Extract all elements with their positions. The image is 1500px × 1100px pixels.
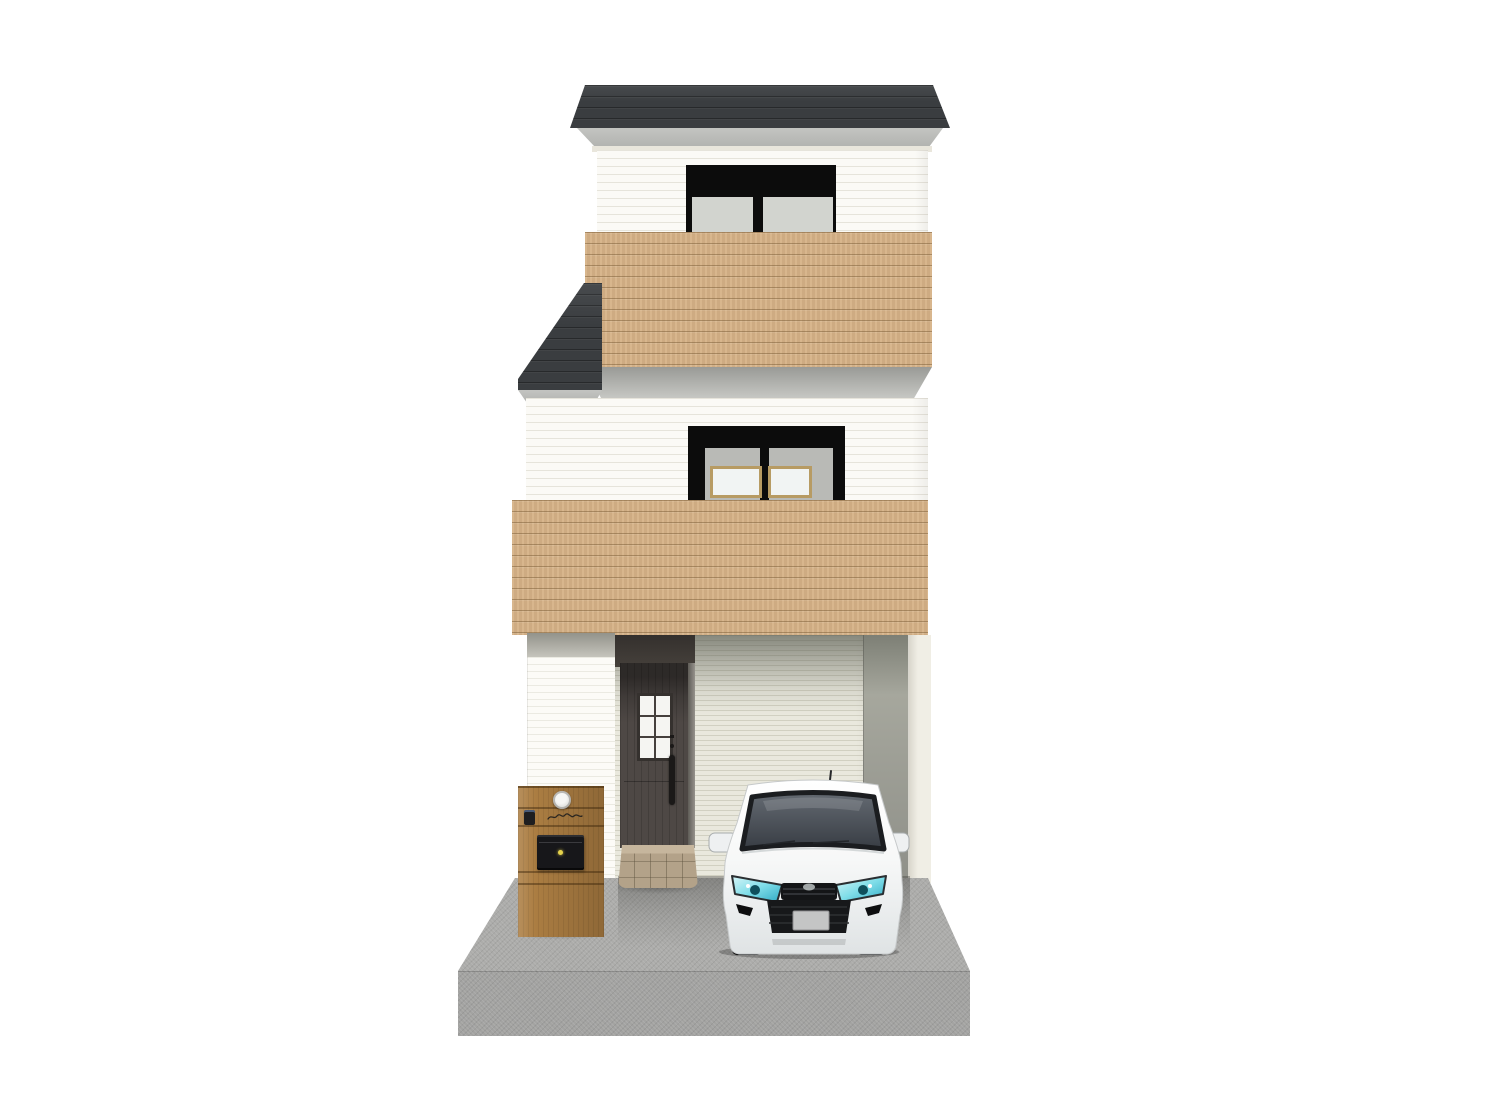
door-lock-cylinder <box>670 744 674 748</box>
door-handle <box>669 755 675 805</box>
second-floor-window <box>688 426 845 500</box>
door-window <box>637 693 673 761</box>
car-bumper-lip <box>772 939 846 945</box>
main-roof <box>570 85 950 128</box>
headlight-right-projector <box>858 885 868 895</box>
entrance-step <box>618 845 698 888</box>
post-groove <box>518 883 604 885</box>
lower-balcony-shadow <box>527 633 615 659</box>
rendering-canvas <box>0 0 1500 1100</box>
main-roof-fascia <box>572 128 948 147</box>
driveway-front-face <box>458 971 970 1036</box>
headlight-left-glint <box>746 884 750 888</box>
second-floor-window-sash-right <box>768 466 812 498</box>
upper-balcony-wood-band <box>585 232 932 367</box>
car <box>703 763 915 960</box>
headlight-left-projector <box>750 885 760 895</box>
mailbox-post <box>518 786 604 937</box>
second-floor-window-sash-left <box>710 466 762 498</box>
mailbox-flap-line <box>539 842 582 843</box>
post-groove <box>518 825 604 827</box>
car-emblem <box>803 884 815 891</box>
entrance-door <box>620 663 688 848</box>
door-jamb <box>688 663 695 848</box>
door-panel-line <box>624 781 684 782</box>
nameplate-script <box>546 812 584 822</box>
post-groove <box>518 871 604 873</box>
third-floor-window-pane-right <box>763 197 833 232</box>
car-license-plate <box>793 911 829 930</box>
upper-balcony-underside <box>585 367 932 400</box>
door-lock <box>670 735 674 738</box>
mailbox <box>537 835 584 870</box>
side-roof <box>518 283 602 390</box>
intercom-unit <box>524 810 535 825</box>
headlight-right-glint <box>868 884 872 888</box>
third-floor-window <box>686 165 836 232</box>
post-light <box>553 791 571 809</box>
lower-balcony-wood-band <box>512 500 928 635</box>
mailbox-keyhole <box>558 850 563 855</box>
third-floor-window-pane-left <box>692 197 753 232</box>
